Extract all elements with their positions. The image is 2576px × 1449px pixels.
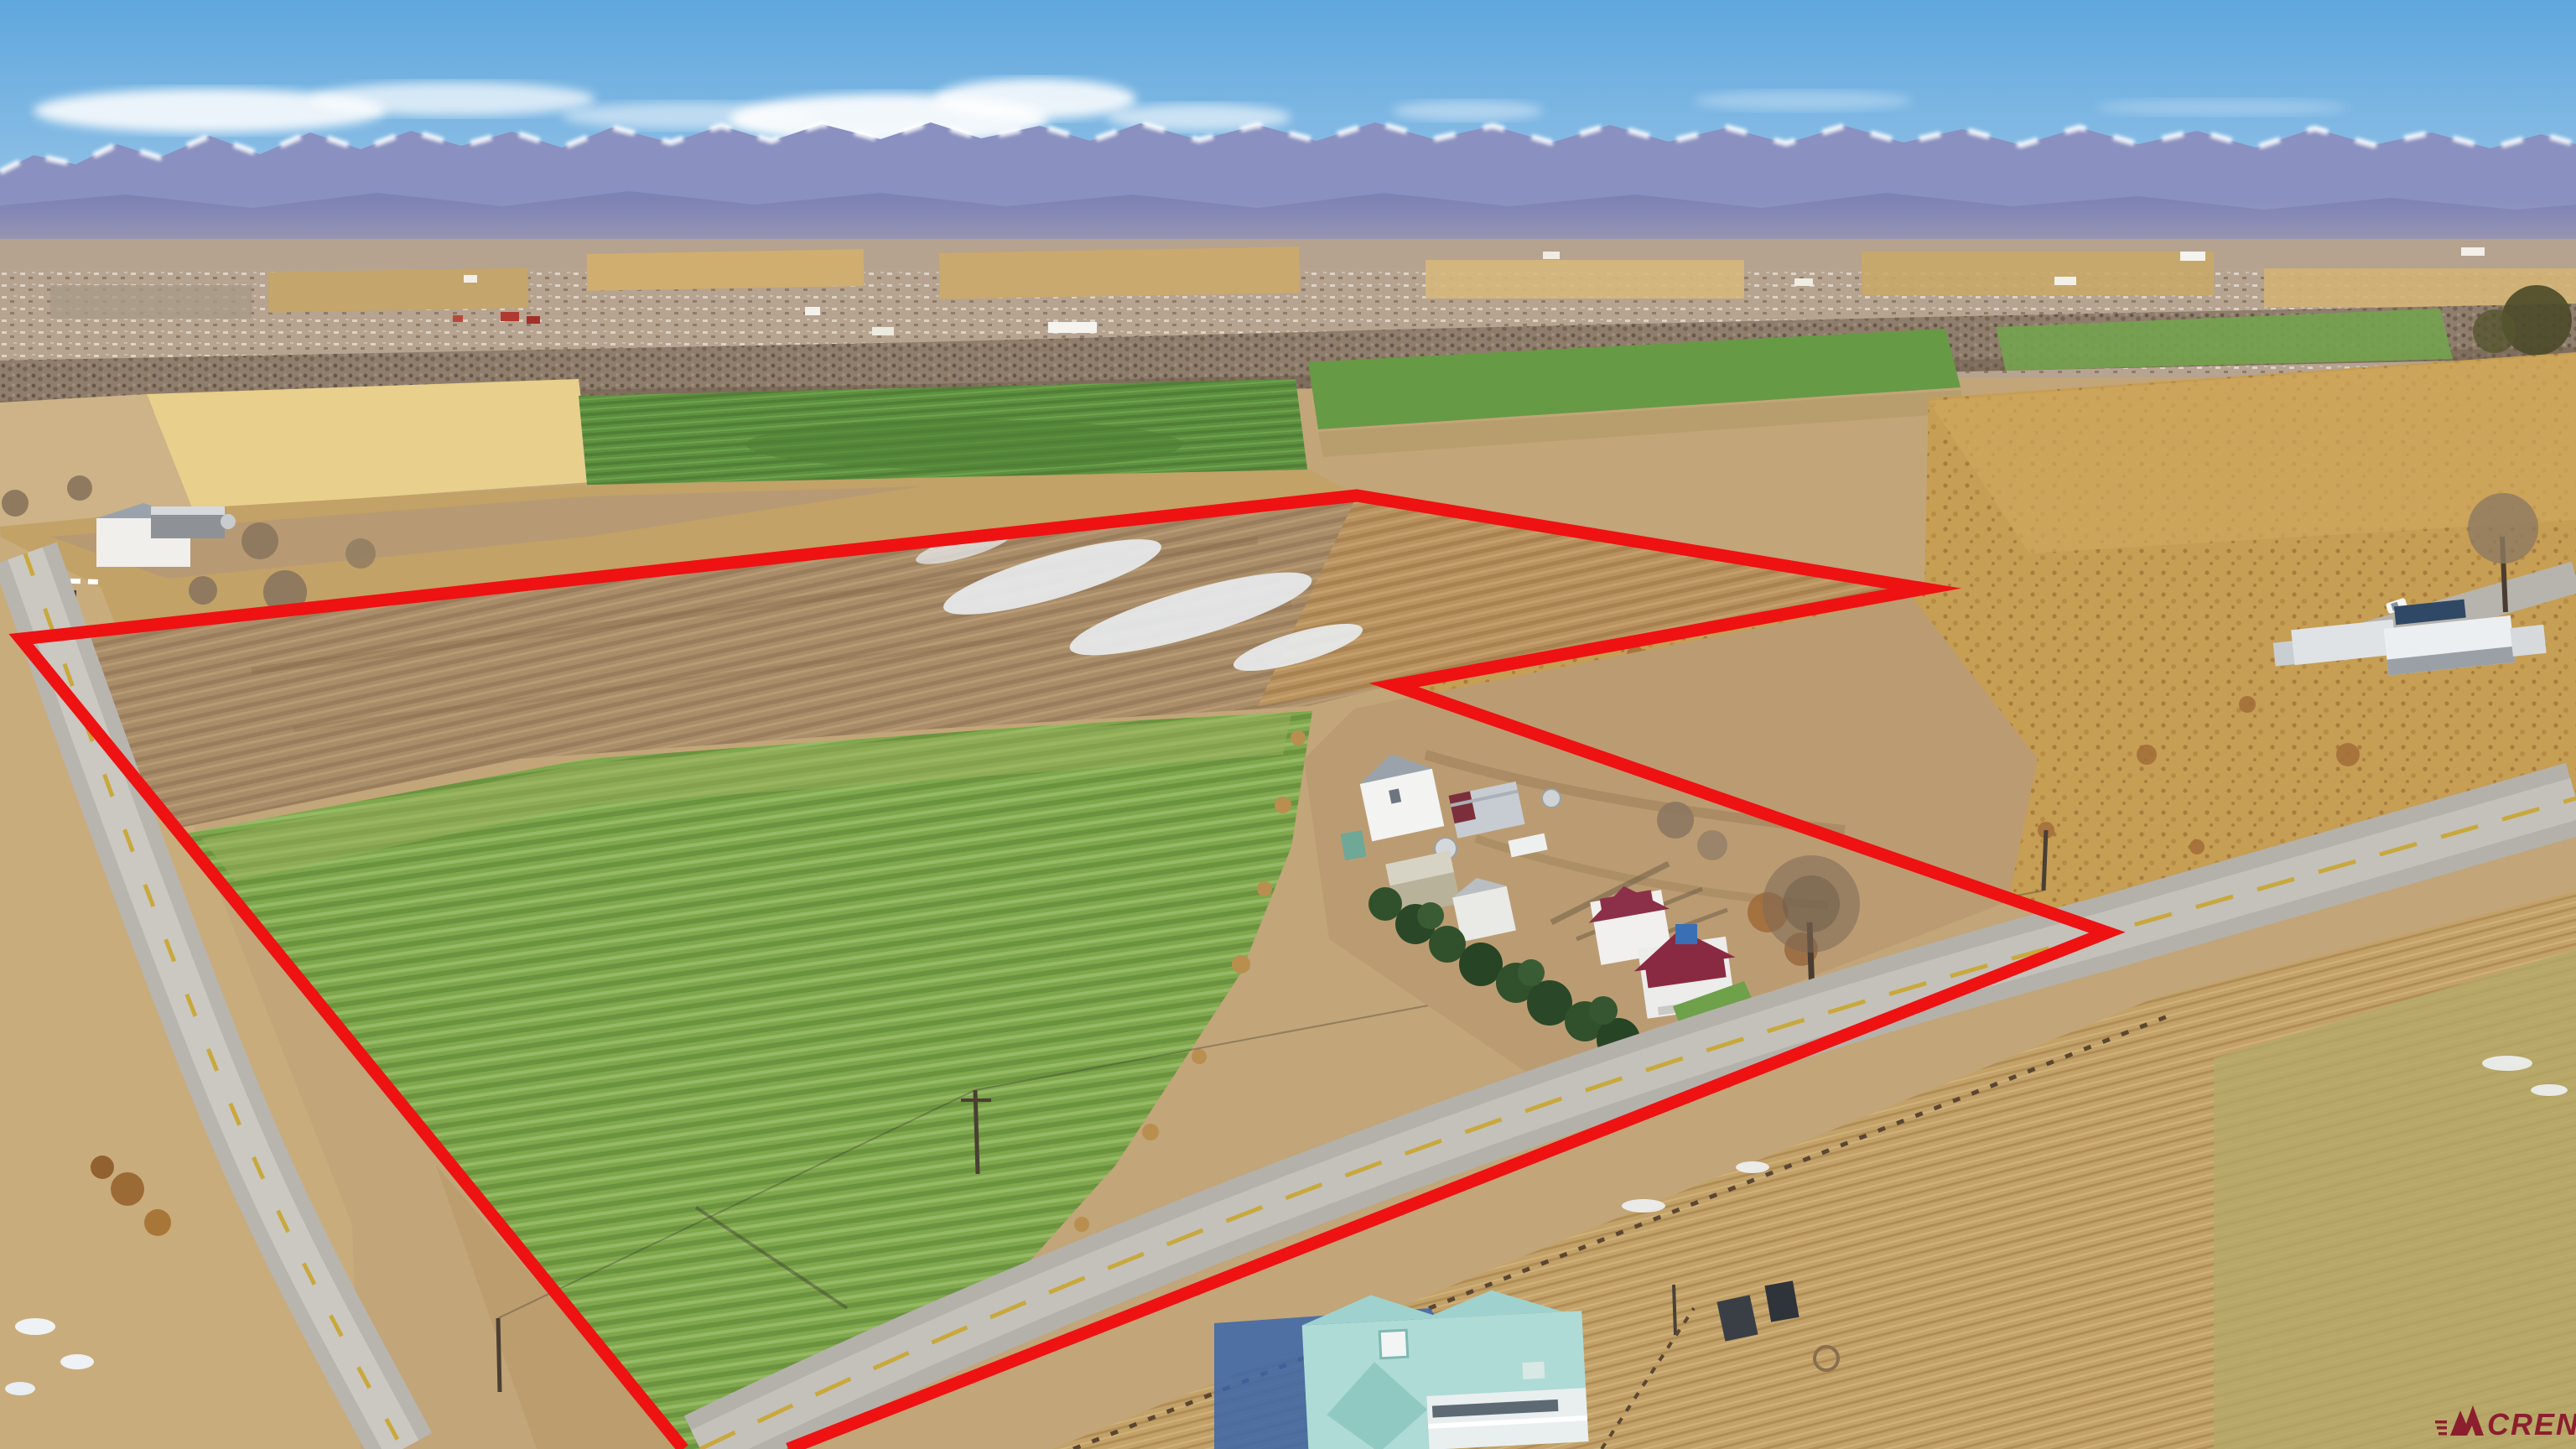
teal-shed xyxy=(1340,830,1366,860)
aerial-property-photo: CREN xyxy=(0,0,2576,1449)
watermark-text: CREN xyxy=(2487,1407,2576,1441)
aerial-scene xyxy=(0,0,2576,1449)
watermark-logo-icon xyxy=(2435,1405,2484,1436)
watermark: CREN xyxy=(2435,1395,2576,1446)
grain-bin xyxy=(1542,789,1561,808)
blue-object xyxy=(1675,924,1697,944)
